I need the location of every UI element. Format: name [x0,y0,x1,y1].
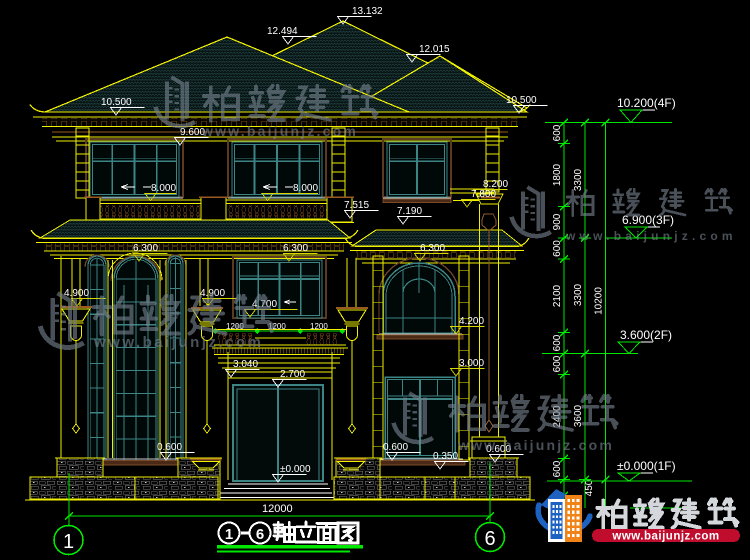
svg-text:1: 1 [225,526,233,543]
svg-text:600: 600 [552,240,563,257]
svg-text:6.300: 6.300 [283,243,308,254]
svg-text:±0.000: ±0.000 [280,464,311,475]
svg-text:13.132: 13.132 [352,6,383,17]
svg-text:1: 1 [63,531,74,553]
svg-text:www.baijunjz.com: www.baijunjz.com [93,334,263,351]
svg-text:900: 900 [552,213,563,230]
svg-text:1800: 1800 [552,163,563,186]
svg-text:www.baijunjz.com: www.baijunjz.com [611,531,719,543]
svg-text:8.000: 8.000 [151,183,176,194]
svg-text:4.200: 4.200 [459,316,484,327]
svg-text:8.000: 8.000 [293,183,318,194]
svg-text:10.500: 10.500 [506,95,537,106]
svg-text:600: 600 [552,334,563,351]
svg-text:0.600: 0.600 [383,442,408,453]
svg-text:www.baijunjz.com: www.baijunjz.com [201,123,358,139]
svg-text:2100: 2100 [552,284,563,307]
svg-text:www.baijunjz.com: www.baijunjz.com [457,437,614,453]
svg-text:6.300: 6.300 [133,243,158,254]
svg-text:10200: 10200 [594,287,605,315]
svg-text:2.700: 2.700 [280,369,305,380]
svg-text:6: 6 [484,528,495,550]
svg-text:7.800: 7.800 [471,189,496,200]
svg-text:600: 600 [552,124,563,141]
svg-text:450: 450 [584,479,595,496]
svg-text:3.600(2F): 3.600(2F) [620,328,672,342]
svg-text:0.350: 0.350 [433,451,458,462]
svg-text:12.494: 12.494 [267,26,298,37]
svg-text:7.515: 7.515 [344,200,369,211]
svg-text:6: 6 [256,526,264,543]
svg-text:10.500: 10.500 [101,97,132,108]
svg-text:0.600: 0.600 [157,442,182,453]
svg-text:3300: 3300 [573,283,584,306]
svg-text:600: 600 [552,355,563,372]
svg-text:600: 600 [552,460,563,477]
svg-text:12000: 12000 [262,503,293,515]
svg-text:10.200(4F): 10.200(4F) [617,96,676,110]
svg-text:3.040: 3.040 [233,359,258,370]
svg-text:www.baijunjz.com: www.baijunjz.com [565,229,737,243]
svg-text:3.000: 3.000 [459,358,484,369]
svg-text:12.015: 12.015 [419,44,450,55]
svg-text:±0.000(1F): ±0.000(1F) [617,459,676,473]
svg-text:3300: 3300 [573,168,584,191]
svg-text:7.190: 7.190 [397,206,422,217]
svg-text:6.300: 6.300 [420,243,445,254]
